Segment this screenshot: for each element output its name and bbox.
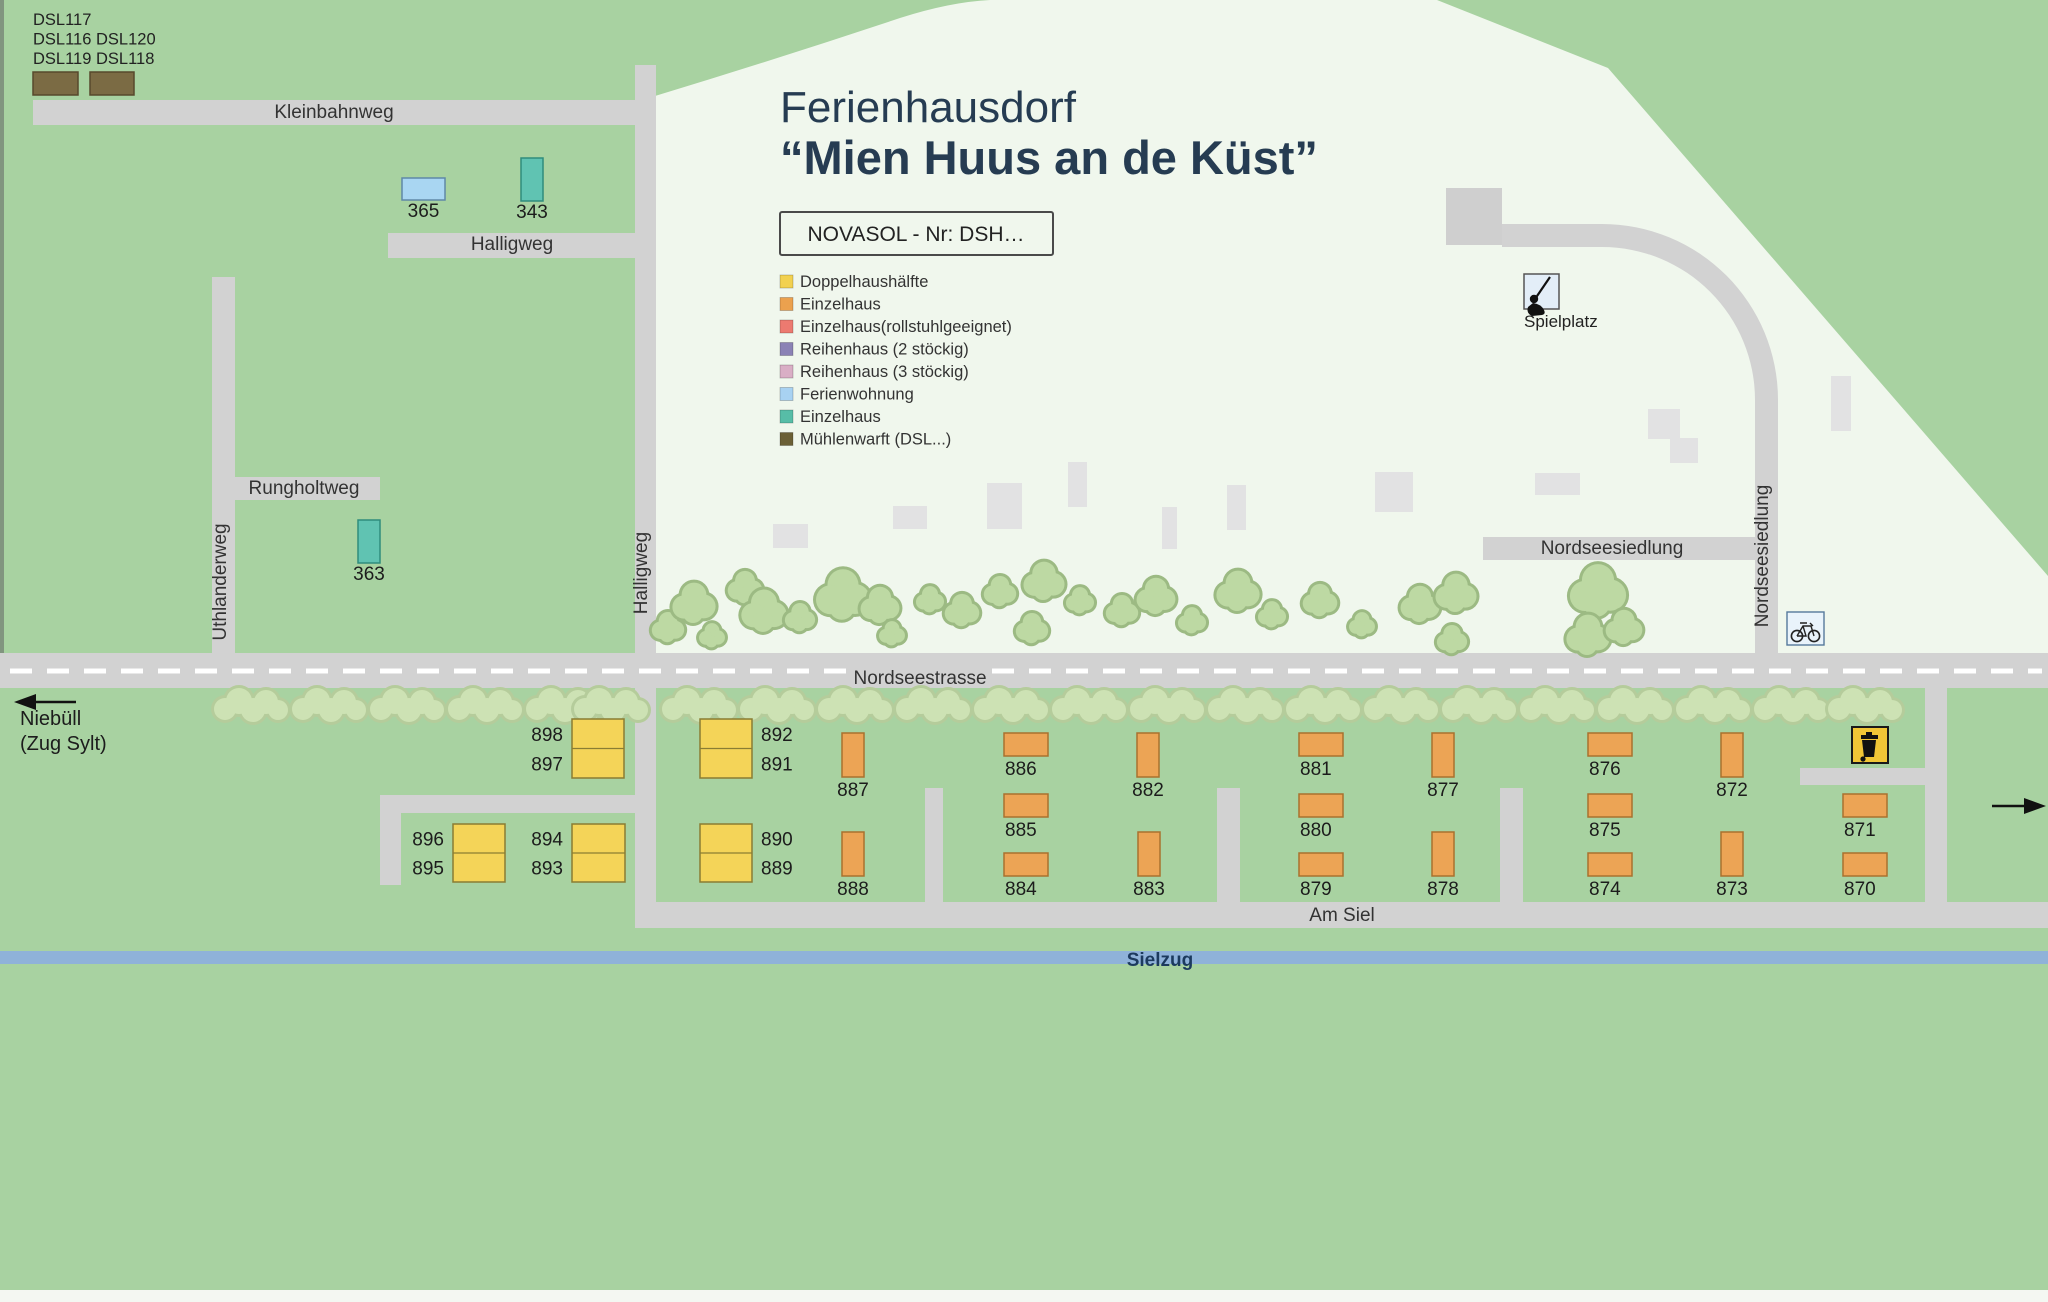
legend-swatch: [780, 275, 793, 288]
house-number-876: 876: [1589, 759, 1621, 780]
building: [987, 483, 1022, 529]
house-882: 882: [1132, 733, 1164, 801]
house-shape: [1299, 853, 1343, 876]
house-number-884: 884: [1005, 879, 1037, 900]
legend-label: Einzelhaus(rollstuhlgeeignet): [800, 318, 1012, 336]
house-number-891: 891: [761, 754, 793, 775]
house-shape: [1432, 832, 1454, 876]
river-label: Sielzug: [1127, 950, 1194, 971]
house-shape: [1588, 853, 1632, 876]
house-887: 887: [837, 733, 869, 801]
tree-crown: [1265, 614, 1278, 627]
tree-crown: [1444, 639, 1458, 653]
road-branch-3: [1217, 788, 1240, 902]
house-number-897: 897: [531, 754, 563, 775]
street-label-rungholtweg: Rungholtweg: [249, 478, 360, 499]
legend-swatch: [780, 343, 793, 356]
house-shape: [1138, 832, 1160, 876]
building: [1162, 507, 1177, 549]
trash-lid-handle: [1866, 732, 1872, 735]
legend-swatch: [780, 433, 793, 446]
road-branch-0: [380, 795, 637, 813]
tree-crown: [683, 603, 703, 623]
bicycle-poi: [1787, 612, 1824, 645]
house-number-873: 873: [1716, 879, 1748, 900]
house-shape: [1843, 853, 1887, 876]
house-shape: [1843, 794, 1887, 817]
street-label-nordseestrasse: Nordseestrasse: [853, 668, 986, 689]
legend-label: Mühlenwarft (DSL...): [800, 431, 951, 449]
legend-item: Reihenhaus (3 stöckig): [780, 363, 969, 381]
building: [893, 506, 927, 529]
road-branch-5: [1925, 688, 1947, 904]
house-shape: [1588, 733, 1632, 756]
tree-crown: [716, 700, 736, 720]
house-number-890: 890: [761, 830, 793, 851]
tree-crown: [1355, 624, 1367, 636]
building: [1670, 438, 1698, 463]
legend-label: Reihenhaus (3 stöckig): [800, 363, 969, 381]
building: [1535, 473, 1580, 495]
house-873: 873: [1716, 832, 1748, 900]
tree-crown: [1574, 700, 1594, 720]
building: [1068, 462, 1087, 507]
tree-crown: [1615, 627, 1632, 644]
direction-west-line1: Niebüll: [20, 708, 81, 730]
street-label-nordseesiedlung-h: Nordseesiedlung: [1541, 538, 1684, 559]
road-branch-6: [1800, 768, 1925, 785]
house-number-363: 363: [353, 564, 385, 585]
tree-crown: [1496, 700, 1516, 720]
legend-swatch: [780, 298, 793, 311]
house-number-886: 886: [1005, 759, 1037, 780]
legend-label: Reihenhaus (2 stöckig): [800, 341, 969, 359]
playground-swing-icon: [1524, 274, 1559, 309]
house-number-889: 889: [761, 859, 793, 880]
house-muehlenwarft-0: [33, 72, 78, 95]
house-number-888: 888: [837, 879, 869, 900]
tree-crown: [1073, 600, 1086, 613]
house-343: 343: [516, 158, 548, 223]
building: [1227, 485, 1246, 530]
house-muehlenwarft-1: [90, 72, 134, 95]
house-872: 872: [1716, 733, 1748, 801]
tree-crown: [829, 595, 854, 620]
street-label-am-siel: Am Siel: [1309, 905, 1374, 926]
tree-crown: [923, 599, 936, 612]
map-title-line1: Ferienhausdorf: [780, 83, 1077, 132]
tree-crown: [1652, 700, 1672, 720]
map-edge-line: [0, 0, 4, 653]
tree-crown: [1418, 700, 1438, 720]
tree-crown: [660, 627, 675, 642]
swing-person-head: [1530, 295, 1538, 303]
house-878: 878: [1427, 832, 1459, 900]
house-number-877: 877: [1427, 780, 1459, 801]
tree-crown: [1185, 620, 1198, 633]
house-shape: [1721, 733, 1743, 777]
dsl-line: DSL117: [33, 11, 91, 29]
street-label-kleinbahnweg: Kleinbahnweg: [274, 102, 393, 123]
legend-item: Doppelhaushälfte: [780, 273, 928, 291]
house-number-878: 878: [1427, 879, 1459, 900]
house-shape: [402, 178, 445, 200]
house-883: 883: [1133, 832, 1165, 900]
house-number-882: 882: [1132, 780, 1164, 801]
tree-crown: [950, 700, 970, 720]
house-number-343: 343: [516, 202, 548, 223]
house-365: 365: [402, 178, 445, 222]
house-number-881: 881: [1300, 759, 1332, 780]
street-label-halligweg-h: Halligweg: [471, 234, 553, 255]
tree-crown: [1311, 600, 1327, 616]
river-sielzug: [0, 951, 2048, 964]
house-shape: [1004, 853, 1048, 876]
tree-crown: [1577, 635, 1597, 655]
tree-crown: [992, 591, 1007, 606]
building: [1831, 376, 1851, 431]
tree-crown: [346, 700, 366, 720]
tree-crown: [1106, 700, 1126, 720]
legend-item: Einzelhaus(rollstuhlgeeignet): [780, 318, 1012, 336]
house-number-870: 870: [1844, 879, 1876, 900]
house-shape: [1721, 832, 1743, 876]
legend-label: Einzelhaus: [800, 296, 881, 314]
tree-crown: [1024, 628, 1039, 643]
house-877: 877: [1427, 733, 1459, 801]
house-shape: [521, 158, 543, 201]
tree-crown: [870, 605, 888, 623]
house-number-872: 872: [1716, 780, 1748, 801]
house-shape: [842, 733, 864, 777]
legend-swatch: [780, 320, 793, 333]
house-number-880: 880: [1300, 820, 1332, 841]
legend-item: Reihenhaus (2 stöckig): [780, 341, 969, 359]
street-label-uthlanderweg: Uthlanderweg: [210, 523, 231, 640]
house-shape: [1299, 733, 1343, 756]
tree-crown: [1114, 610, 1129, 625]
street-label-nordseesiedlung-v: Nordseesiedlung: [1752, 485, 1773, 628]
street-label-halligweg-v: Halligweg: [631, 532, 652, 614]
house-shape: [358, 520, 380, 563]
tree-crown: [1184, 700, 1204, 720]
tree-crown: [794, 700, 814, 720]
legend-item: Mühlenwarft (DSL...): [780, 431, 951, 449]
tree-crown: [705, 635, 717, 647]
tree-crown: [628, 700, 648, 720]
tree-crown: [1340, 700, 1360, 720]
house-number-365: 365: [408, 201, 440, 222]
playground-label: Spielplatz: [1524, 312, 1598, 331]
trash-wheel: [1860, 756, 1865, 761]
house-number-879: 879: [1300, 879, 1332, 900]
dsl-line: DSL116 DSL120: [33, 31, 156, 49]
house-number-871: 871: [1844, 820, 1876, 841]
trash-body: [1862, 740, 1876, 757]
novasol-label: NOVASOL - Nr: DSH…: [807, 223, 1024, 246]
tree-crown: [1034, 581, 1053, 600]
tree-crown: [1227, 591, 1247, 611]
house-number-895: 895: [412, 859, 444, 880]
building: [1446, 188, 1502, 245]
tree-crown: [1410, 604, 1428, 622]
house-number-885: 885: [1005, 820, 1037, 841]
road-branch-4: [1500, 788, 1523, 902]
legend-label: Ferienwohnung: [800, 386, 914, 404]
tree-crown: [872, 700, 892, 720]
tree-crown: [502, 700, 522, 720]
building: [1375, 472, 1413, 512]
trash-lid: [1861, 735, 1878, 739]
map-title-line2: “Mien Huus an de Küst”: [780, 131, 1318, 184]
house-number-898: 898: [531, 725, 563, 746]
house-number-894: 894: [531, 830, 563, 851]
tree-crown: [792, 617, 806, 631]
house-number-875: 875: [1589, 820, 1621, 841]
tree-crown: [1446, 593, 1465, 612]
house-number-883: 883: [1133, 879, 1165, 900]
road-branch-2: [925, 788, 943, 902]
tree-crown: [268, 700, 288, 720]
house-shape: [1588, 794, 1632, 817]
road-branch-1: [380, 795, 401, 885]
road-halligweg-v: [635, 65, 656, 922]
legend-swatch: [780, 365, 793, 378]
building: [1648, 409, 1680, 439]
map-svg: Sielzug 89889789689589489389289189088988…: [0, 0, 2048, 1302]
dsl-line: DSL119 DSL118: [33, 50, 154, 68]
tree-crown: [1730, 700, 1750, 720]
legend-label: Einzelhaus: [800, 408, 881, 426]
house-shape: [1004, 733, 1048, 756]
direction-west-line2: (Zug Sylt): [20, 733, 107, 755]
house-shape: [1004, 794, 1048, 817]
legend-item: Ferienwohnung: [780, 386, 914, 404]
bottom-margin: [0, 1290, 2048, 1302]
house-363: 363: [353, 520, 385, 585]
tree-crown: [752, 611, 773, 632]
house-number-892: 892: [761, 725, 793, 746]
tree-crown: [1808, 700, 1828, 720]
house-number-893: 893: [531, 859, 563, 880]
tree-crown: [953, 610, 969, 626]
house-number-887: 887: [837, 780, 869, 801]
tree-crown: [885, 633, 897, 645]
house-number-896: 896: [412, 830, 444, 851]
legend-swatch: [780, 410, 793, 423]
legend-swatch: [780, 388, 793, 401]
house-number-874: 874: [1589, 879, 1621, 900]
tree-crown: [1262, 700, 1282, 720]
house-shape: [1137, 733, 1159, 777]
house-888: 888: [837, 832, 869, 900]
tree-crown: [1028, 700, 1048, 720]
legend-label: Doppelhaushälfte: [800, 273, 928, 291]
tree-crown: [1882, 700, 1902, 720]
ferienhausdorf-map: Sielzug 89889789689589489389289189088988…: [0, 0, 2048, 1302]
building: [773, 524, 808, 548]
tree-crown: [424, 700, 444, 720]
house-shape: [842, 832, 864, 876]
tree-crown: [1146, 596, 1164, 614]
house-shape: [1432, 733, 1454, 777]
trash-poi: [1852, 727, 1888, 763]
house-shape: [1299, 794, 1343, 817]
